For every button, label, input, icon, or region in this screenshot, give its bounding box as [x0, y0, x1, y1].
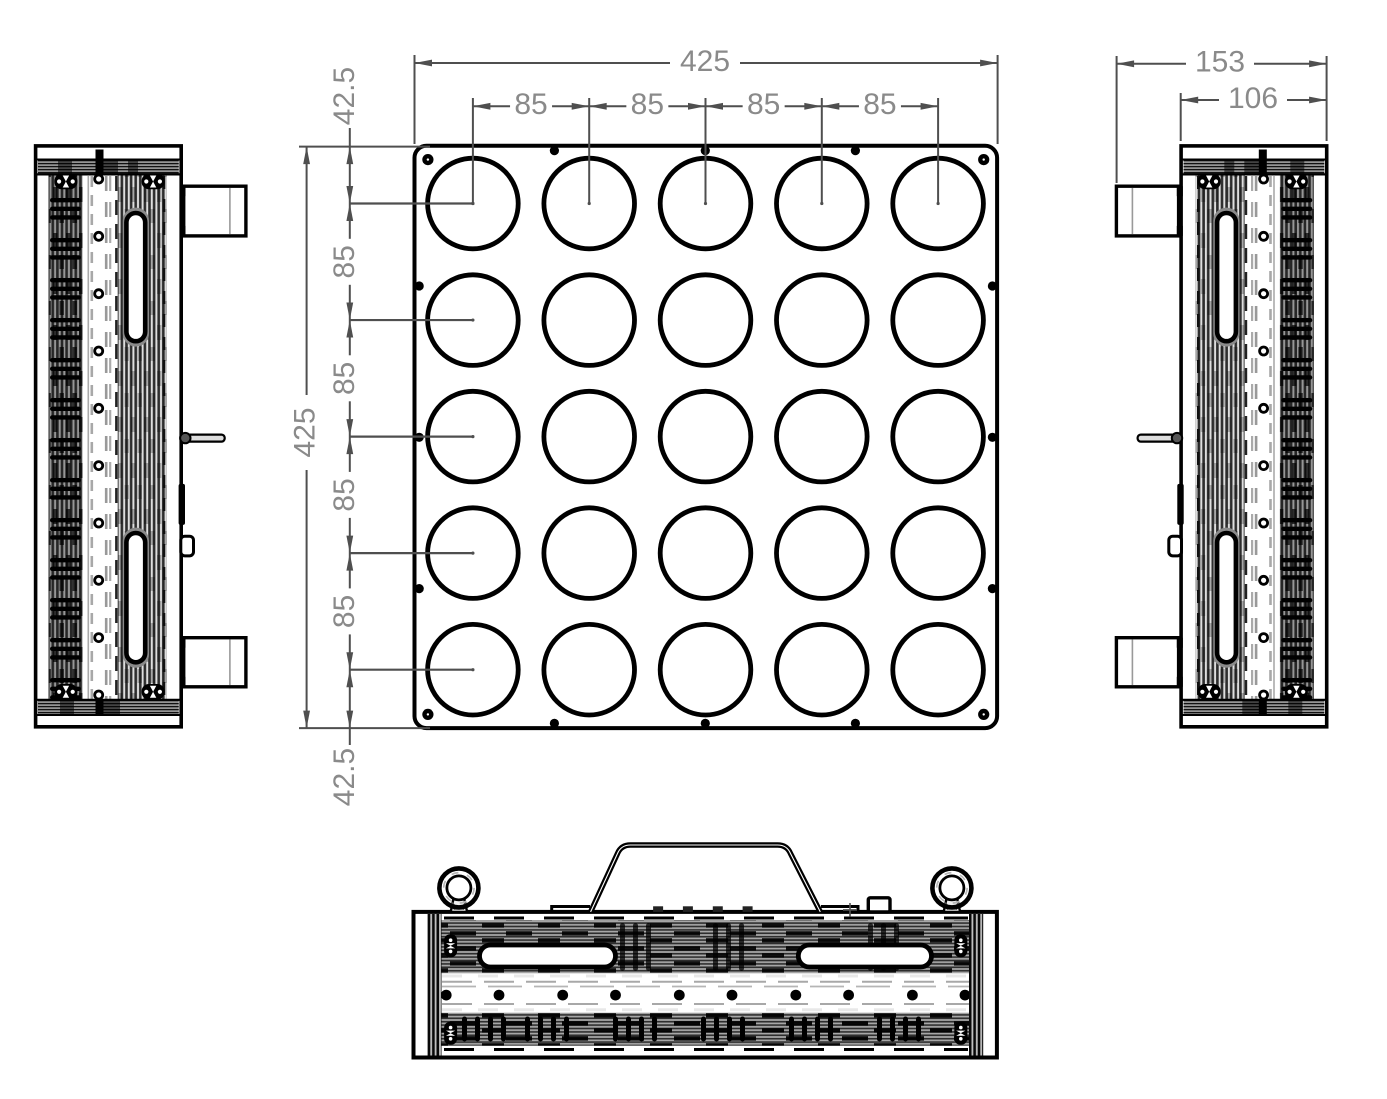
svg-text:85: 85	[514, 88, 547, 121]
svg-text:425: 425	[289, 407, 322, 457]
svg-text:85: 85	[328, 362, 361, 395]
svg-text:42.5: 42.5	[328, 67, 361, 125]
svg-text:425: 425	[680, 45, 730, 78]
svg-text:85: 85	[631, 88, 664, 121]
svg-text:42.5: 42.5	[328, 748, 361, 806]
svg-text:106: 106	[1228, 82, 1278, 115]
svg-text:85: 85	[328, 245, 361, 278]
svg-text:85: 85	[747, 88, 780, 121]
svg-text:85: 85	[328, 478, 361, 511]
svg-text:85: 85	[328, 595, 361, 628]
svg-text:85: 85	[863, 88, 896, 121]
svg-text:153: 153	[1195, 46, 1245, 79]
